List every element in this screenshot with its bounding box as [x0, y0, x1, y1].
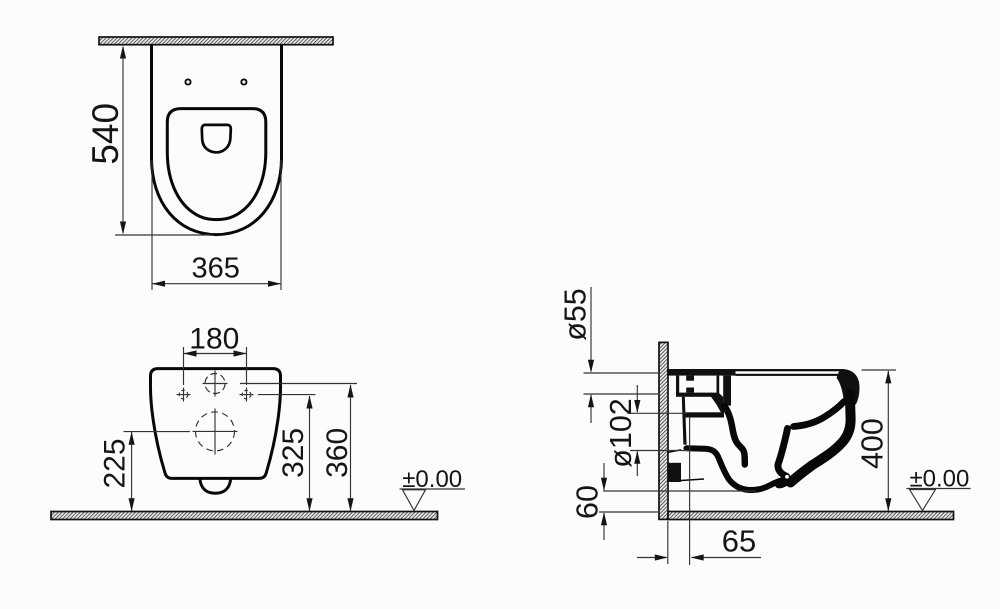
- svg-text:65: 65: [722, 524, 756, 559]
- svg-text:ø55: ø55: [559, 288, 593, 341]
- svg-text:360: 360: [321, 428, 354, 478]
- svg-text:ø102: ø102: [604, 398, 638, 468]
- svg-text:225: 225: [99, 438, 132, 488]
- svg-text:60: 60: [571, 485, 605, 519]
- svg-text:540: 540: [85, 103, 126, 165]
- svg-text:325: 325: [277, 428, 310, 478]
- svg-text:180: 180: [189, 323, 239, 356]
- svg-text:365: 365: [192, 253, 240, 285]
- svg-text:400: 400: [856, 418, 890, 469]
